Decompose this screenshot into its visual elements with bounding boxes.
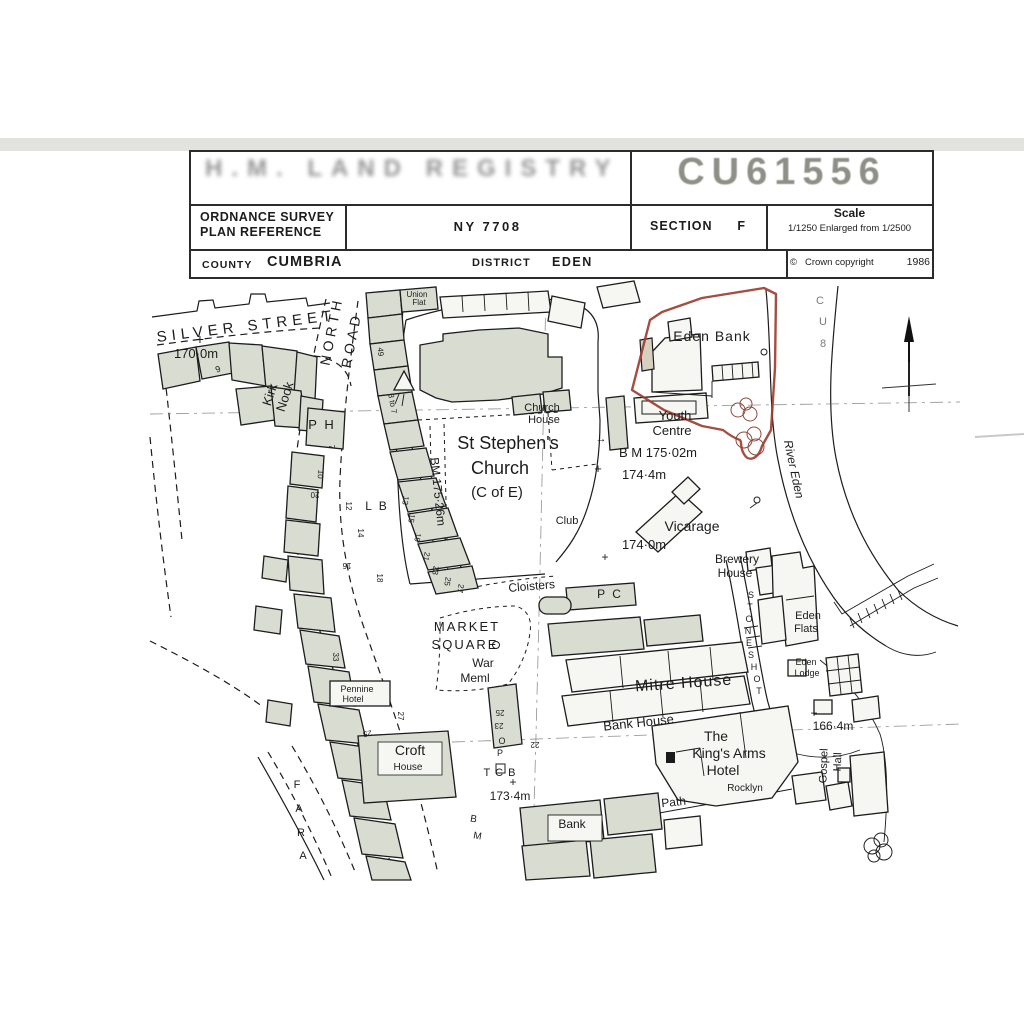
section-cell: SECTION F — [630, 219, 766, 233]
map-label: B M 175·02m — [619, 445, 697, 460]
map-label: Path — [661, 794, 687, 811]
section-label: SECTION — [650, 219, 713, 233]
map-label: O — [745, 614, 752, 624]
map-label: M — [472, 830, 482, 842]
copyright-text: Crown copyright — [805, 257, 874, 268]
map-label: St Stephen's — [457, 433, 559, 453]
map-label: Eden — [795, 610, 821, 622]
table-border — [630, 150, 632, 250]
map-label: Vicarage — [664, 518, 719, 534]
map-label: L B — [365, 499, 389, 513]
map-label: Church — [471, 458, 529, 478]
map-label: B — [469, 814, 478, 826]
map-label: Hotel — [707, 762, 740, 778]
map-label: Brewery — [715, 552, 759, 566]
map-label: Flat — [412, 298, 426, 307]
map-label: Cloisters — [508, 577, 556, 595]
map-label: (C of E) — [471, 484, 523, 501]
scale-cell: Scale 1/1250 Enlarged from 1/2500 — [766, 206, 933, 234]
map-label: Meml — [460, 671, 489, 685]
map-label: 166·4m — [813, 719, 854, 733]
map-label: F — [294, 779, 301, 791]
scale-value: 1/1250 Enlarged from 1/2500 — [766, 223, 933, 234]
table-border — [189, 277, 933, 279]
map-label: 19 — [412, 532, 423, 543]
map-label: O — [753, 674, 760, 684]
map-label: 174·4m — [622, 467, 666, 482]
title-number: CU61556 — [652, 151, 912, 194]
map-label: Centre — [652, 423, 691, 438]
map-label: 27 — [455, 583, 466, 594]
map-label: Croft — [395, 742, 425, 758]
district-label: DISTRICT — [472, 257, 531, 269]
map-label: Club — [556, 515, 579, 527]
land-registry-title-plan: SILVER STREET+170·0m9KirkNookNORTHROADUn… — [0, 0, 1024, 1024]
map-label: 18 — [375, 574, 384, 583]
map-label: R — [297, 827, 305, 839]
map-label: House — [528, 414, 560, 426]
map-label: 13 — [400, 495, 411, 506]
map-label: 25 — [495, 708, 504, 717]
district-value: EDEN — [552, 255, 593, 269]
map-label: Eden Bank — [673, 328, 751, 344]
map-label: H — [751, 662, 758, 672]
map-label: Hotel — [342, 694, 363, 704]
table-border — [189, 249, 933, 251]
map-label: N — [745, 626, 752, 636]
map-label: P — [497, 748, 503, 758]
map-label: House — [718, 566, 753, 580]
county-value: CUMBRIA — [267, 254, 342, 270]
map-label: Bank — [558, 817, 586, 831]
map-label: A — [295, 803, 303, 815]
map-label: Lodge — [794, 668, 819, 678]
registry-title: H.M. LAND REGISTRY — [205, 155, 545, 183]
map-label: MARKET — [434, 619, 500, 634]
map-label: → — [596, 433, 607, 445]
map-label: + — [810, 706, 817, 720]
map-label: War — [472, 656, 494, 670]
map-label: 23 — [494, 721, 503, 730]
map-label: Hall — [832, 752, 845, 771]
map-label: 170·0m — [174, 346, 218, 361]
map-label: T — [756, 686, 762, 696]
map-label: 22 — [530, 740, 539, 749]
plan-reference-value: NY 7708 — [345, 219, 630, 234]
map-label: U — [819, 316, 827, 328]
map-label: + — [509, 775, 516, 789]
map-label: + — [594, 461, 602, 476]
map-label: S — [748, 650, 754, 660]
copyright-year: 1986 — [907, 256, 930, 268]
map-label: S — [748, 590, 754, 600]
county-label: COUNTY — [202, 259, 252, 271]
map-label: 27 — [396, 712, 405, 721]
map-label: Flats — [794, 623, 818, 635]
map-label: E — [746, 638, 752, 648]
table-border — [786, 249, 788, 278]
map-label: 15 — [406, 513, 417, 524]
gospel-hall-building — [850, 752, 888, 816]
copyright-symbol: © — [790, 257, 797, 268]
map-label: P H — [308, 417, 335, 432]
map-label: 10 — [316, 469, 326, 479]
map-label: + — [601, 550, 608, 564]
scale-label: Scale — [766, 206, 933, 220]
north-arrow — [882, 316, 936, 412]
map-label: 20 — [310, 490, 319, 499]
table-border — [189, 150, 191, 279]
church-building — [420, 328, 562, 402]
map-label: Rocklyn — [727, 783, 763, 794]
map-label: SQUARE — [432, 637, 499, 652]
map-label: Gospel — [817, 748, 830, 783]
map-label: 174·0m — [622, 537, 666, 552]
map-label: A — [299, 850, 307, 862]
map-label: 8 — [820, 338, 826, 350]
map-label: Church — [524, 402, 559, 414]
map-label: T — [747, 602, 753, 612]
map-label: The — [704, 728, 728, 744]
map-label: 16 — [342, 561, 351, 570]
copyright-cell: © Crown copyright 1986 — [790, 256, 930, 268]
map-label: Pennine — [340, 684, 373, 694]
section-value: F — [737, 219, 746, 233]
map-label: O — [498, 736, 505, 746]
map-label: House — [394, 762, 423, 773]
map-label: Youth — [659, 408, 692, 423]
map-label: 7 — [327, 445, 336, 450]
map-label: + — [196, 331, 204, 347]
map-label: Eden — [795, 657, 816, 667]
map-label: 21 — [421, 551, 432, 562]
map-label: ROAD — [338, 311, 364, 369]
map-label: 14 — [356, 529, 365, 538]
map-label: 33 — [331, 653, 340, 662]
map-label: 49 — [376, 347, 386, 357]
map-label: 12 — [344, 502, 353, 511]
plan-reference-label: ORDNANCE SURVEY PLAN REFERENCE — [200, 210, 334, 240]
map-label: 173·4m — [490, 789, 531, 803]
map-label: C — [816, 295, 824, 307]
map-label: King's Arms — [692, 745, 765, 761]
map-label: P C — [597, 587, 623, 601]
